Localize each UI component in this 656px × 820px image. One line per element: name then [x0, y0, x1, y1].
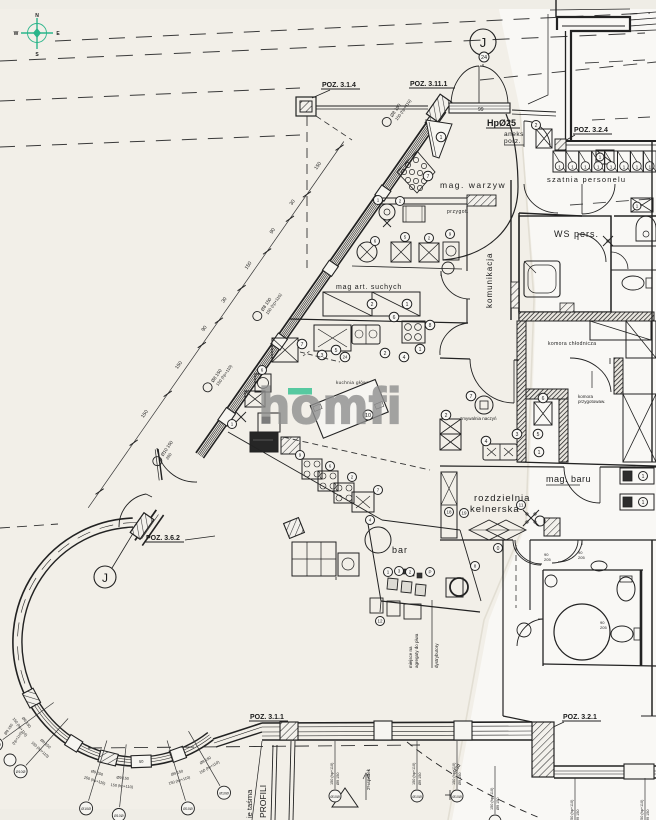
svg-text:POZ. 3.2.1: POZ. 3.2.1 [563, 714, 597, 721]
svg-text:mag. warzyw: mag. warzyw [440, 180, 506, 190]
svg-text:5: 5 [335, 348, 338, 354]
svg-text:7: 7 [427, 174, 430, 180]
svg-text:24: 24 [481, 55, 487, 61]
svg-text:2: 2 [384, 351, 387, 357]
svg-text:POZ. 3.6.2: POZ. 3.6.2 [146, 535, 180, 542]
svg-text:Ø10Ø: Ø10Ø [16, 770, 26, 774]
svg-text:150 (hp+110): 150 (hp+110) [640, 799, 644, 820]
svg-text:5: 5 [537, 432, 540, 438]
svg-text:1: 1 [610, 164, 613, 170]
svg-text:miejsce na: miejsce na [408, 646, 413, 668]
svg-text:2: 2 [371, 302, 374, 308]
svg-text:1: 1 [642, 500, 645, 506]
svg-text:Ø9 150: Ø9 150 [336, 773, 340, 785]
svg-text:porz.: porz. [504, 138, 521, 145]
svg-text:POZ. 3.1.4: POZ. 3.1.4 [322, 82, 356, 89]
svg-text:2: 2 [535, 123, 538, 129]
svg-text:205: 205 [600, 625, 607, 630]
svg-text:1: 1 [419, 347, 422, 353]
svg-text:Ø9 150: Ø9 150 [576, 810, 580, 820]
svg-text:12: 12 [377, 619, 383, 624]
svg-text:POZ. 3.11.1: POZ. 3.11.1 [410, 81, 447, 88]
svg-text:N: N [35, 13, 39, 19]
svg-text:komunikacja: komunikacja [485, 253, 494, 308]
svg-text:POZ. 3.1.1: POZ. 3.1.1 [250, 714, 284, 721]
svg-text:1: 1 [406, 302, 409, 308]
svg-text:7: 7 [301, 342, 304, 348]
svg-text:Ø10Ø: Ø10Ø [330, 795, 340, 799]
svg-text:150 (hp+110): 150 (hp+110) [412, 762, 416, 785]
svg-text:6: 6 [393, 315, 396, 321]
svg-text:aneks: aneks [504, 131, 524, 138]
svg-text:przygot.: przygot. [447, 209, 469, 215]
svg-text:komora chłodnicza: komora chłodnicza [548, 341, 597, 347]
svg-text:1: 1 [440, 135, 443, 141]
svg-text:W: W [14, 31, 19, 37]
svg-text:Ø10Ø: Ø10Ø [219, 792, 229, 796]
svg-text:2%spadek: 2%spadek [366, 768, 371, 790]
svg-text:Ø10Ø: Ø10Ø [81, 807, 91, 811]
svg-text:przygotowaw.: przygotowaw. [578, 399, 605, 404]
svg-text:PROFILI: PROFILI [258, 785, 268, 818]
svg-text:bar: bar [392, 545, 408, 555]
svg-text:99: 99 [478, 107, 484, 113]
svg-text:POZ. 3.2.4: POZ. 3.2.4 [574, 127, 608, 134]
svg-text:zmywalnia naczyń: zmywalnia naczyń [460, 416, 497, 421]
svg-text:1: 1 [597, 164, 600, 170]
svg-text:205: 205 [544, 557, 551, 562]
svg-text:mag. baru: mag. baru [546, 474, 591, 484]
svg-text:3: 3 [321, 353, 324, 359]
svg-text:18: 18 [446, 510, 452, 515]
svg-text:4: 4 [403, 355, 406, 361]
svg-text:Ø10Ø: Ø10Ø [183, 807, 193, 811]
svg-text:205: 205 [578, 555, 585, 560]
svg-text:dystrybutory: dystrybutory [434, 643, 439, 668]
svg-text:homfi: homfi [259, 378, 403, 434]
svg-text:150 (hp+110): 150 (hp+110) [490, 787, 494, 810]
svg-text:HpØ25: HpØ25 [487, 118, 516, 128]
svg-text:ie taśma: ie taśma [245, 789, 254, 818]
svg-text:szatnia personelu: szatnia personelu [547, 175, 626, 184]
svg-text:kelnerska: kelnerska [470, 504, 520, 515]
svg-text:agregaty do piwa: agregaty do piwa [414, 633, 419, 668]
svg-text:1: 1 [584, 164, 587, 170]
svg-text:19: 19 [461, 511, 467, 516]
svg-text:1: 1 [558, 164, 561, 170]
svg-text:Ø10Ø: Ø10Ø [412, 795, 422, 799]
svg-text:Ø10Ø: Ø10Ø [114, 814, 124, 818]
svg-text:mag art. suchych: mag art. suchych [336, 284, 402, 291]
svg-text:150 (hp+110): 150 (hp+110) [570, 799, 574, 820]
svg-text:0: 0 [497, 546, 500, 552]
svg-text:rozdzielnia: rozdzielnia [474, 493, 530, 504]
svg-text:1: 1 [648, 164, 651, 170]
svg-text:7: 7 [470, 394, 473, 400]
svg-text:150 (hp+110): 150 (hp+110) [452, 762, 456, 785]
svg-text:P: P [428, 570, 431, 575]
svg-text:4: 4 [485, 439, 488, 445]
svg-text:1: 1 [623, 164, 626, 170]
svg-text:Ø9 150: Ø9 150 [418, 773, 422, 785]
svg-text:2: 2 [445, 413, 448, 419]
svg-text:Ø10Ø: Ø10Ø [452, 795, 462, 799]
svg-text:J: J [102, 571, 108, 585]
svg-text:Ø9 150: Ø9 150 [646, 810, 650, 820]
svg-text:6: 6 [542, 396, 545, 402]
svg-text:24: 24 [343, 355, 348, 360]
svg-text:J: J [480, 35, 487, 50]
svg-text:Ø9 150: Ø9 150 [458, 773, 462, 785]
svg-text:150 (hp+110): 150 (hp+110) [330, 762, 334, 785]
svg-text:1: 1 [538, 450, 541, 456]
svg-text:3: 3 [516, 432, 519, 438]
svg-text:1: 1 [636, 164, 639, 170]
svg-text:8: 8 [429, 323, 432, 329]
svg-text:Ø9 150: Ø9 150 [496, 798, 500, 810]
svg-text:1: 1 [642, 474, 645, 480]
svg-text:1: 1 [571, 164, 574, 170]
